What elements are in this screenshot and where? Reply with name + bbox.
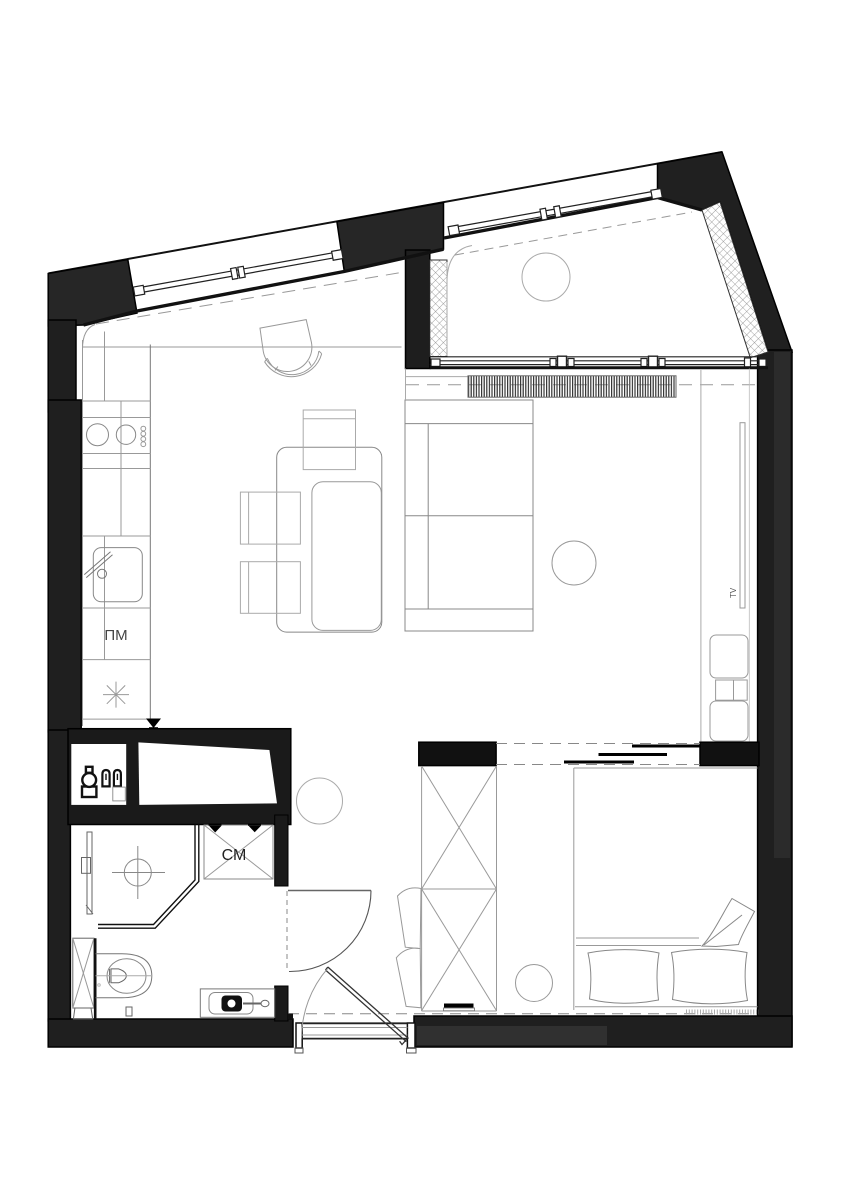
- svg-text:ПМ: ПМ: [104, 627, 127, 644]
- svg-text:СМ: СМ: [222, 847, 247, 864]
- svg-text:TV: TV: [729, 587, 738, 598]
